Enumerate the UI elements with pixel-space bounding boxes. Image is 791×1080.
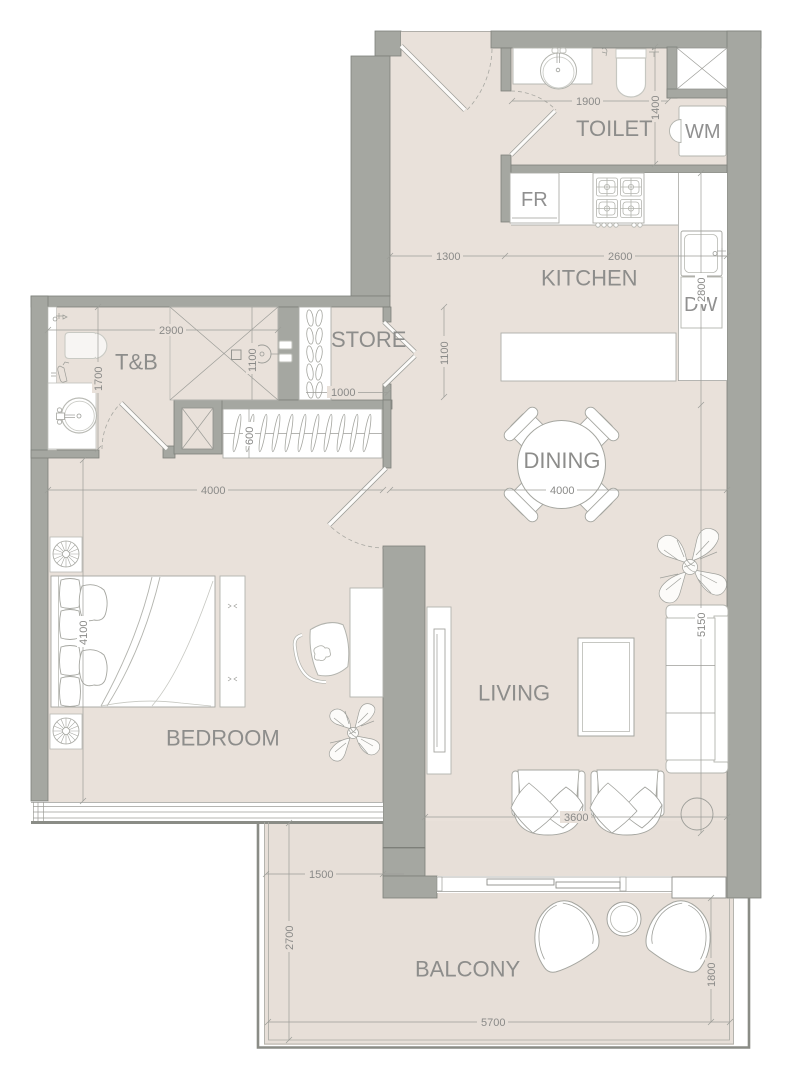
svg-text:600: 600 <box>244 427 256 445</box>
svg-text:BEDROOM: BEDROOM <box>166 726 280 751</box>
svg-text:1500: 1500 <box>309 869 333 881</box>
svg-text:DINING: DINING <box>524 448 601 473</box>
svg-text:STORE: STORE <box>331 327 406 352</box>
svg-text:TOILET: TOILET <box>576 116 653 141</box>
svg-text:2900: 2900 <box>159 325 183 337</box>
svg-text:1900: 1900 <box>576 96 600 108</box>
svg-text:BALCONY: BALCONY <box>415 957 520 982</box>
svg-text:1000: 1000 <box>331 387 355 399</box>
svg-text:4000: 4000 <box>550 485 574 497</box>
svg-text:3600: 3600 <box>564 812 588 824</box>
svg-text:KITCHEN: KITCHEN <box>541 266 638 291</box>
svg-text:5150: 5150 <box>696 613 708 637</box>
svg-text:5700: 5700 <box>481 1017 505 1029</box>
svg-text:1100: 1100 <box>439 341 451 365</box>
svg-text:T&B: T&B <box>115 350 158 375</box>
svg-text:WM: WM <box>685 121 721 143</box>
svg-text:4000: 4000 <box>201 485 225 497</box>
svg-text:2700: 2700 <box>284 926 296 950</box>
svg-text:1700: 1700 <box>93 367 105 391</box>
svg-text:FR: FR <box>521 189 548 211</box>
svg-text:1300: 1300 <box>436 251 460 263</box>
svg-text:1100: 1100 <box>247 348 259 372</box>
svg-text:2600: 2600 <box>608 251 632 263</box>
svg-text:2800: 2800 <box>696 278 708 302</box>
svg-text:4100: 4100 <box>78 621 90 645</box>
svg-text:1800: 1800 <box>706 963 718 987</box>
svg-text:LIVING: LIVING <box>478 681 550 706</box>
